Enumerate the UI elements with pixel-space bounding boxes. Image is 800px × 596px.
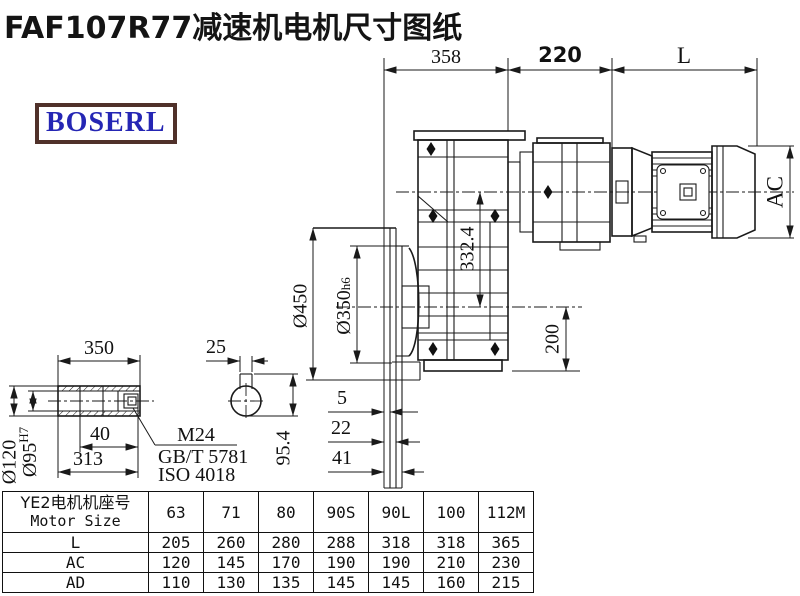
dim-L-label: L [677,43,691,68]
dim-dia350-label: Ø350 [333,290,355,334]
dim-dia95-label: Ø95 [19,443,41,477]
bolt-icon [491,209,500,223]
dim-41-label: 41 [332,447,352,469]
technical-drawing: 358 220 L [0,0,800,492]
cell: 145 [369,573,424,593]
terminal-box [680,184,696,200]
table-row: AD 110 130 135 145 145 160 215 [3,573,534,593]
drawing-page: FAF107R77减速机电机尺寸图纸 BOSERL 358 [0,0,800,596]
row-label: AD [3,573,149,593]
cell: 190 [314,553,369,573]
col-header: 63 [149,492,204,533]
dimension-dia450: Ø450 [290,228,313,380]
cell: 145 [204,553,259,573]
hollow-shaft-view: 350 Ø120 Ø95H7 40 313 M24 [0,337,248,486]
svg-text:Ø350h6: Ø350h6 [333,277,355,335]
dimension-dia350: Ø350h6 [333,246,396,363]
cell: 110 [149,573,204,593]
dim-22-label: 22 [331,417,351,439]
dimension-41: 41 [328,447,424,472]
cell: 318 [369,533,424,553]
cell: 365 [479,533,534,553]
cell: 280 [259,533,314,553]
dim-dia350-tolerance: h6 [338,277,353,291]
bolt-icon [427,142,436,156]
dim-5-label: 5 [337,387,347,409]
cell: 205 [149,533,204,553]
dim-220-label: 220 [538,43,582,67]
dim-dia95-tolerance: H7 [16,426,31,442]
dimension-200: 200 [512,307,580,371]
col-header: 100 [424,492,479,533]
cell: 135 [259,573,314,593]
table-row: AC 120 145 170 190 190 210 230 [3,553,534,573]
dimension-358: 358 [384,46,508,488]
col-header: 90L [369,492,424,533]
dim-313-label: 313 [73,448,103,470]
cell: 190 [369,553,424,573]
row-label: AC [3,553,149,573]
row-label: L [3,533,149,553]
dimension-332: 332.4 [457,192,480,307]
motor-size-table: YE2电机机座号 Motor Size 63 71 80 90S 90L 100… [2,491,534,593]
bolt-spec-label: M24 [177,424,215,446]
cell: 170 [259,553,314,573]
svg-text:Ø95H7: Ø95H7 [16,426,41,477]
motor [612,146,755,242]
bolt-icon [429,342,438,356]
cell: 130 [204,573,259,593]
dimension-L: L [612,43,757,146]
dim-358-label: 358 [431,46,461,68]
dim-200-label: 200 [542,324,564,354]
table-header-motor-size: YE2电机机座号 Motor Size [3,492,149,533]
cell: 120 [149,553,204,573]
cell: 215 [479,573,534,593]
dim-40-label: 40 [90,423,110,445]
cell: 210 [424,553,479,573]
cell: 288 [314,533,369,553]
dim-332-label: 332.4 [457,227,479,272]
cell: 145 [314,573,369,593]
input-adapter [508,138,610,250]
table-row: L 205 260 280 288 318 318 365 [3,533,534,553]
dim-dia450-label: Ø450 [290,284,312,328]
cell: 260 [204,533,259,553]
col-header: 80 [259,492,314,533]
col-header: 71 [204,492,259,533]
cell: 160 [424,573,479,593]
cell: 230 [479,553,534,573]
cell: 318 [424,533,479,553]
standard-iso-label: ISO 4018 [158,464,235,486]
col-header: 112M [479,492,534,533]
col-header: 90S [314,492,369,533]
dimension-5: 5 [328,387,418,412]
bolt-icon [491,342,500,356]
dimension-22: 22 [328,417,420,442]
header-en: Motor Size [3,513,148,530]
bolt-icon [544,185,553,199]
dim-25-label: 25 [206,336,226,358]
dim-954-label: 95.4 [273,431,295,466]
dim-dia120-label: Ø120 [0,440,21,484]
dim-350-label: 350 [84,337,114,359]
dim-AC-label: AC [762,176,787,208]
dimension-220: 220 [508,43,612,148]
header-cn: YE2电机机座号 [3,494,148,512]
table-header-row: YE2电机机座号 Motor Size 63 71 80 90S 90L 100… [3,492,534,533]
output-flange [306,228,429,488]
